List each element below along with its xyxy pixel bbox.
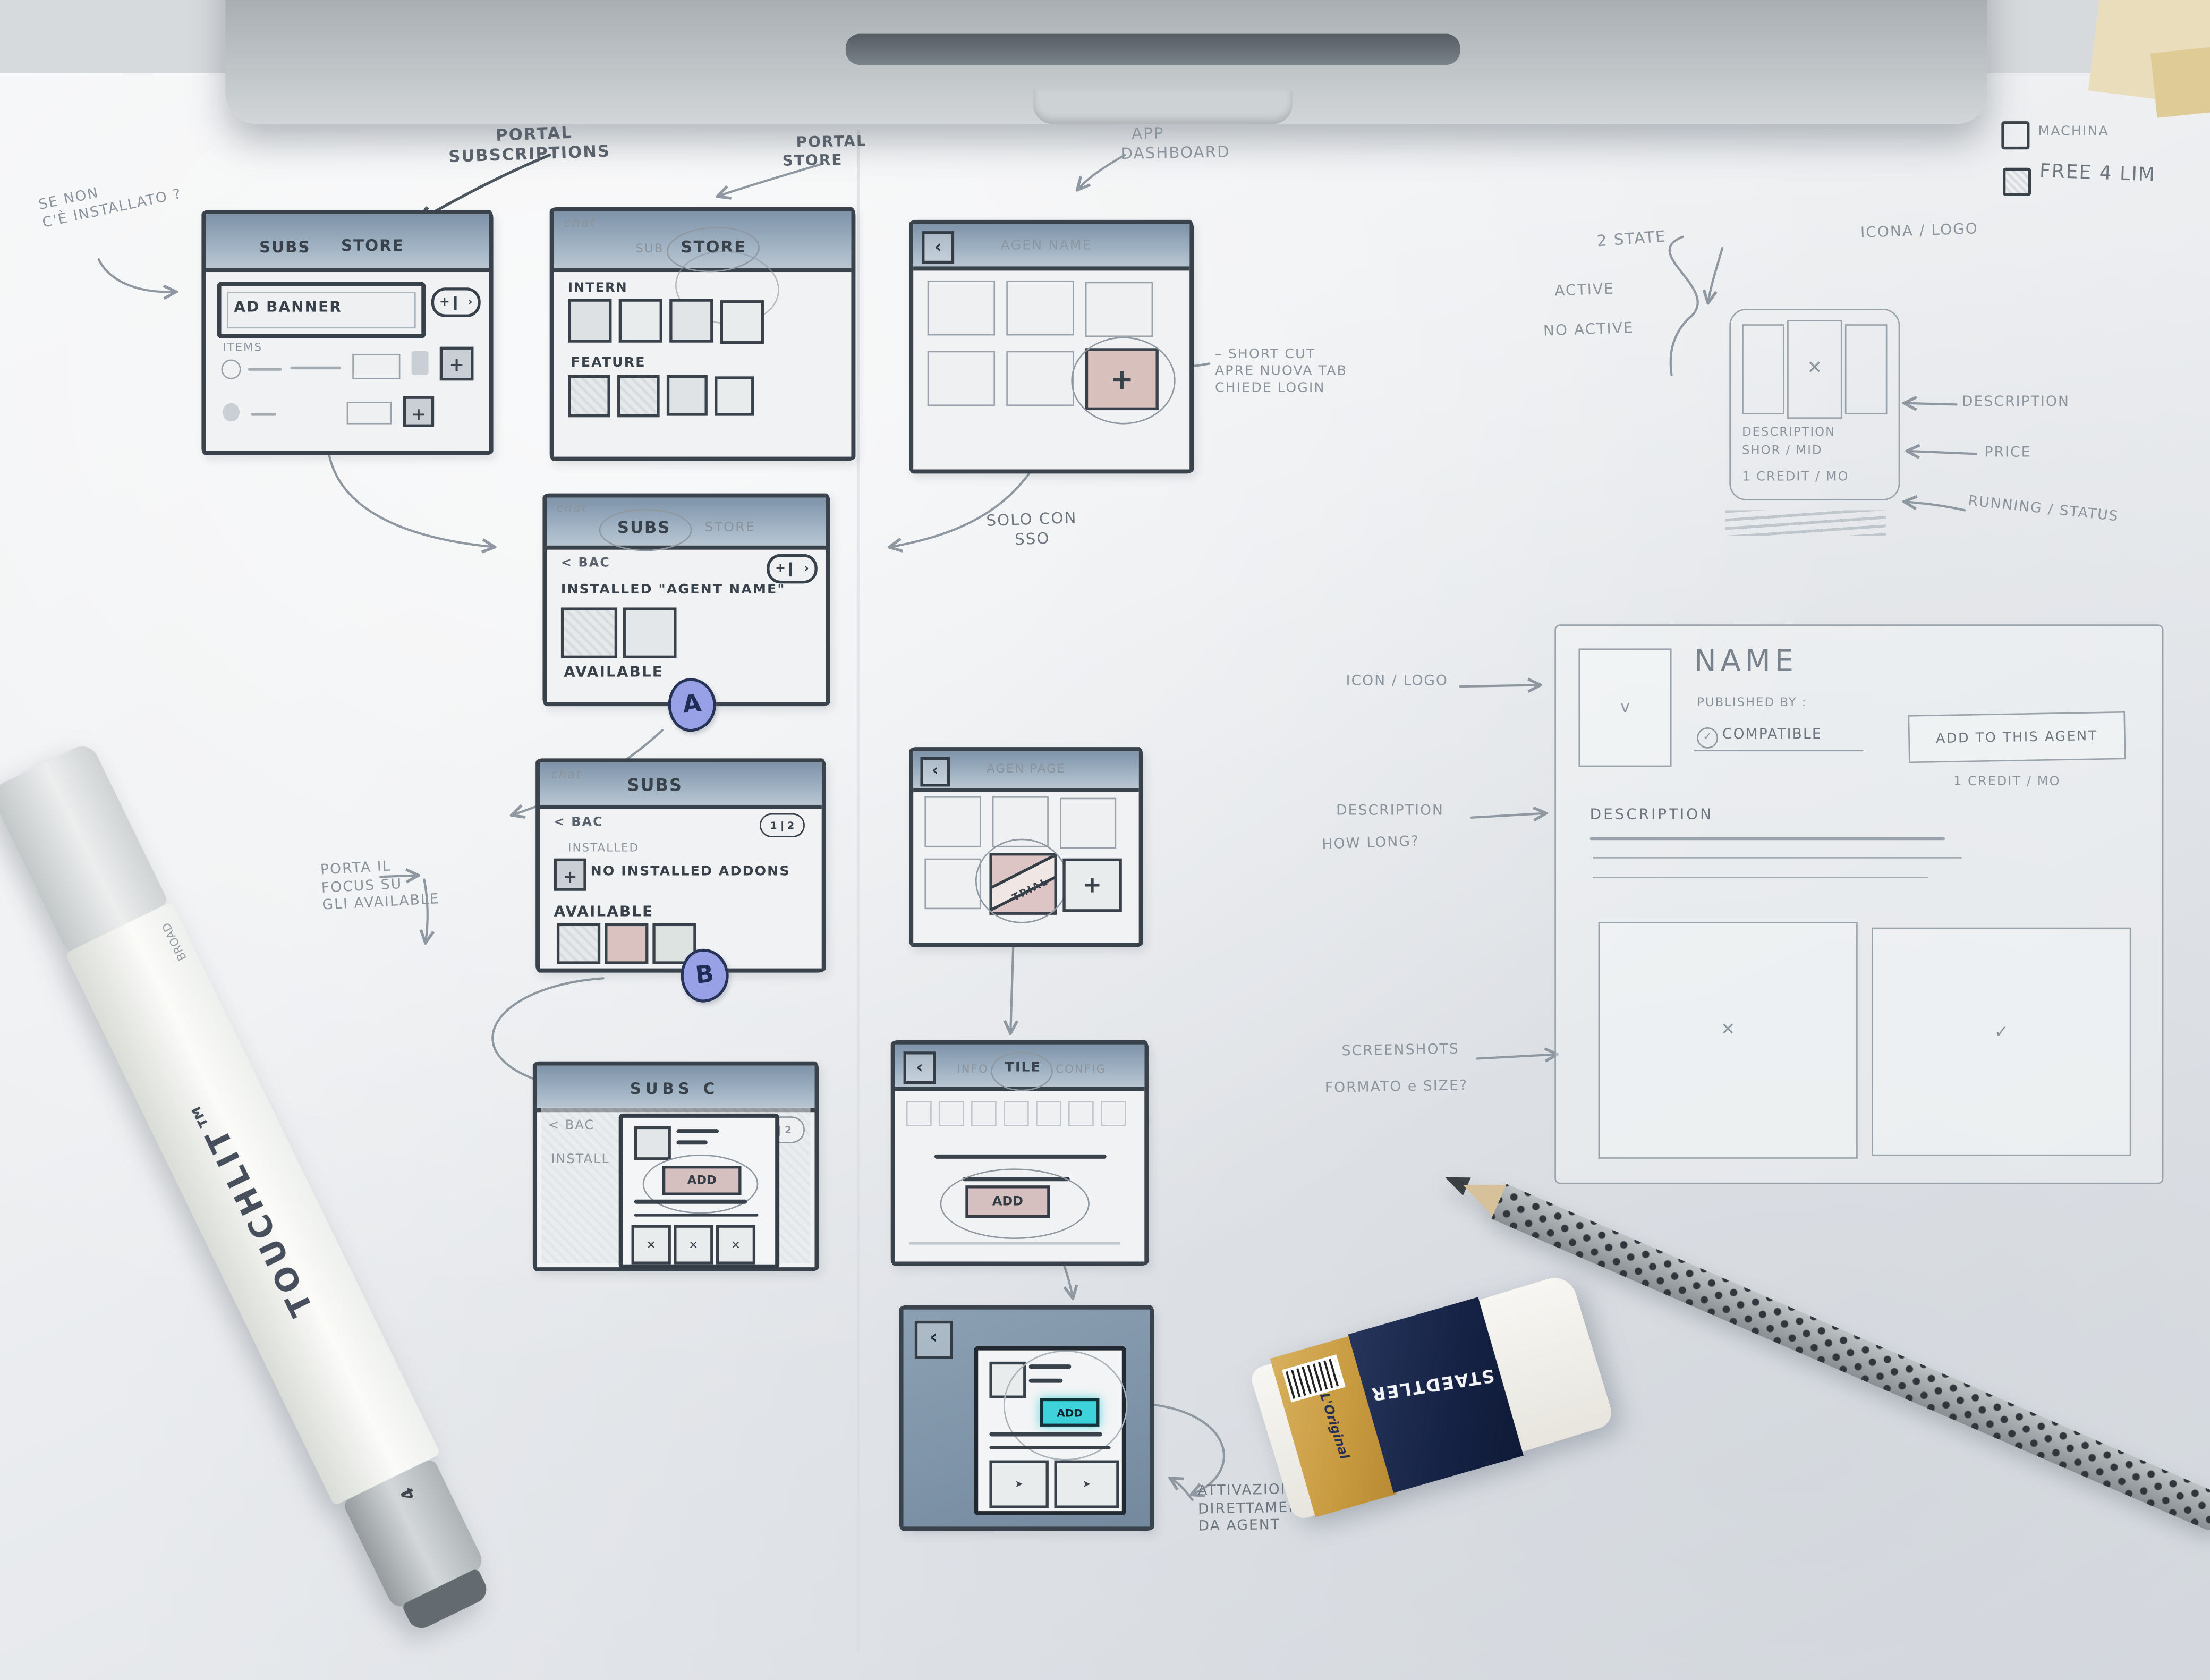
agent-page-header: ‹ AGEN PAGE [913,751,1138,792]
description-line [1593,857,1962,859]
addon-name-line [676,1129,719,1133]
screenshot-thumb: ✕ [674,1225,713,1265]
config-slot [939,1101,964,1126]
store-item-tile [568,375,610,418]
x-mark: ✕ [1807,358,1822,379]
add-to-agent-button: ADD TO THIS AGENT [1908,711,2126,763]
x-mark: ✕ [688,1239,698,1252]
item-squiggle [248,368,282,370]
available-addon-tile [557,923,600,964]
app-tile [928,281,995,335]
agent-tile [1060,798,1116,849]
back-icon: ‹ [930,1327,938,1349]
screenshot-thumb: ✕ [632,1225,671,1265]
app-tile [1006,281,1074,335]
arrow-detail-screenshots [1477,1054,1556,1058]
section-feature: FEATURE [571,355,645,372]
store-item-tile [617,375,660,418]
tile-panel-icon: ✕ [1787,320,1842,419]
divider-line [989,1432,1102,1436]
addon-name-line [676,1140,707,1144]
back-icon: ‹ [932,761,938,779]
agent-tile [924,859,981,910]
wireframe-tile-config: ‹ INFO TILE CONFIG ADD [891,1040,1149,1266]
running-status-bar [1725,510,1885,536]
icon-tick-mark: v [1620,698,1629,716]
agent-tile [924,796,981,847]
item-field [347,402,392,424]
item-dash [251,413,276,415]
subs-detail-title: SUBS C [630,1080,719,1099]
wireframe-subs-detail: SUBS C < BAC INSTALL 1 | 2 ADD ✕ ✕ ✕ [533,1062,819,1271]
checkbox-free [2003,168,2031,196]
wireframe-portal-store: chat SUB STORE INTERN FEATURE [550,207,856,461]
available-heading: AVAILABLE [554,904,654,922]
add-item-button: + [403,396,434,427]
add-button-circle [643,1155,759,1214]
back-icon: ‹ [934,237,941,257]
store-item-tile [568,299,611,342]
installed-header: chat SUBS STORE [547,498,826,550]
toggle-chevron-icon: › [467,295,473,310]
tile-description-label: DESCRIPTION [1742,426,1835,440]
empty-addon-icon: + [554,859,586,891]
description-line [1590,837,1945,840]
photo-stage: PORTAL SUBSCRIPTIONS SE NON C'È INSTALLA… [0,0,2210,1658]
addon-icon-placeholder [634,1126,671,1160]
arrow-tile-price [1908,451,1976,454]
dashboard-title: AGEN NAME [1001,238,1092,255]
note-detail-format-size: FORMATO e SIZE? [1325,1079,1468,1099]
tab-store: STORE [705,520,755,537]
back-link: < BAC [548,1119,594,1135]
note-detail-screenshots: SCREENSHOTS [1341,1042,1459,1062]
eraser-brand-label: STAEDTLER [1373,1365,1496,1405]
x-mark: ✕ [1721,1019,1735,1039]
note-detail-how-long: HOW LONG? [1322,834,1420,855]
new-tile-circle [975,839,1068,923]
item-bullet-icon [222,360,241,379]
tab-tile-circle [991,1051,1053,1091]
config-slot [1004,1101,1029,1126]
addon-name: NAME [1694,643,1798,680]
badge-letter: A [681,690,702,719]
arrow-store-to-installed [328,451,493,547]
installed-addon-tile [623,607,677,658]
plus-icon: + [1083,871,1102,898]
screenshot-thumb: ➤ [1054,1461,1119,1508]
section-intern: INTERN [568,282,628,298]
divider-line [634,1214,758,1216]
installed-heading: INSTALLED "AGENT NAME" [561,582,786,599]
check-machina-label: MACHINA [2038,124,2109,141]
window-corner-label: chat [551,768,582,783]
activation-dialog: ADD ➤ ➤ [974,1346,1126,1515]
note-portal-subscriptions: PORTAL SUBSCRIPTIONS [447,121,610,167]
app-dashboard-header: ‹ AGEN NAME [913,224,1189,271]
plus-tile-circle [1071,337,1175,424]
back-button: ‹ [915,1321,953,1359]
empty-subs-header: chat SUBS [540,762,822,809]
config-slot [1068,1101,1094,1126]
store-item-tile [669,299,713,342]
divider-line [989,1446,1110,1449]
add-to-agent-label: ADD TO THIS AGENT [1936,728,2098,746]
wireframe-addon-detail: v NAME PUBLISHED BY : ✓ COMPATIBLE ADD T… [1554,624,2163,1184]
subs-store-header: SUBS STORE [206,214,489,272]
trash-icon [412,351,429,375]
add-button-circle [1004,1351,1127,1461]
plus-icon: + [563,867,577,887]
back-button: ‹ [920,757,950,787]
baseline [909,1242,1120,1244]
tile-price-label: 1 CREDIT / MO [1742,471,1849,487]
note-tile-description: DESCRIPTION [1962,395,2070,412]
eraser-original-label: L'Original [1316,1391,1350,1461]
tile-panel-right [1845,324,1888,414]
item-dash [291,367,342,369]
screenshot-box: ✓ [1872,928,2131,1156]
back-button: ‹ [904,1051,936,1084]
back-link: < BAC [561,557,610,573]
add-button-circle [940,1168,1090,1239]
app-tile [928,351,995,406]
tab-subs-circle [599,509,692,551]
detail-price: 1 CREDIT / MO [1953,775,2060,791]
back-button: ‹ [922,231,954,264]
back-icon: ‹ [916,1057,923,1077]
arrow-modal-to-attivazione [1147,1404,1224,1494]
back-link: < BAC [554,816,603,832]
brace-two-state [1670,237,1698,375]
app-tile [1006,351,1074,406]
tab-subs: SUBS [627,775,683,796]
note-app-dashboard: APP DASHBOARD [1120,123,1230,164]
ad-banner-label: AD BANNER [234,299,342,317]
add-item-button: + [440,347,474,381]
note-solo-con-sso: SOLO CON SSO [986,508,1078,550]
x-mark: ✕ [731,1239,741,1252]
arrow-tile-description [1906,403,1957,405]
toggle-plus-icon: + [775,562,793,576]
item-bullet-icon [223,403,240,421]
pager-label: 1 | 2 [770,820,795,831]
arrow-attivazione-glyph [1171,1479,1193,1500]
config-slot [971,1101,997,1126]
description-heading: DESCRIPTION [1590,807,1713,825]
pager-pill: 1 | 2 [760,813,805,837]
screenshot-thumb: ✕ [716,1225,755,1265]
divider-line [934,1155,1107,1159]
installed-addon-tile [561,607,617,658]
tile-duration-label: SHOR / MID [1742,444,1822,459]
addon-icon-box: v [1578,648,1671,767]
cursor-icon: ➤ [1083,1479,1091,1490]
installed-heading: INSTALLED [568,842,639,856]
wireframe-agent-page: ‹ AGEN PAGE TRIAL + [909,747,1143,947]
tile-panel-left [1742,324,1784,414]
available-addon-tile [605,923,648,964]
store-item-tile [715,376,754,415]
arrow-detail-description [1472,813,1545,818]
window-corner-label: chat [564,217,596,233]
check-free-label: FREE 4 LIM [2039,160,2156,188]
config-slot [1036,1101,1061,1126]
cursor-icon: ➤ [1015,1479,1023,1490]
toggle-chevron-icon: › [804,562,809,576]
check-mark: ✓ [1994,1022,2009,1041]
view-toggle: +› [767,554,818,584]
tile-spec-card: ✕ DESCRIPTION SHOR / MID 1 CREDIT / MO [1729,309,1900,500]
arrow-se-non [99,259,175,292]
note-portal-store: PORTAL STORE [782,133,868,172]
tab-subs: SUBS [259,238,311,257]
agent-page-title: AGEN PAGE [987,762,1066,777]
screenshot-thumb: ➤ [989,1461,1048,1508]
note-shortcut: – SHORT CUT APRE NUOVA TAB CHIEDE LOGIN [1215,347,1347,397]
window-corner-label: chat [557,502,588,516]
no-addons-text: NO INSTALLED ADDONS [591,864,790,881]
note-state-no-active: NO ACTIVE [1543,320,1635,342]
item-field [352,354,400,379]
arrow-agentpage-to-tile [1010,941,1013,1032]
items-label: ITEMS [223,341,262,355]
store-item-tile [619,299,662,342]
add-tile-button: + [1062,859,1121,912]
tab-store: STORE [341,237,404,256]
note-tile-price: PRICE [1985,445,2031,463]
checkbox-machina [2001,121,2029,149]
store-item-tile [667,375,708,416]
note-state-active: ACTIVE [1554,281,1615,302]
install-label: INSTALL [551,1153,610,1169]
wireframe-app-dashboard: ‹ AGEN NAME + [909,220,1194,474]
compatible-label: COMPATIBLE [1722,727,1822,745]
badge-letter: B [694,961,716,990]
config-slot [1101,1101,1126,1126]
banner-toggle: +› [431,287,481,317]
toggle-plus-icon: + [439,295,457,310]
plus-icon: + [449,355,464,377]
tile-config-header: ‹ INFO TILE CONFIG [895,1045,1145,1091]
addon-dialog: ADD ✕ ✕ ✕ [619,1114,779,1269]
wireframe-subs-store: SUBS STORE AD BANNER +› ITEMS + + [201,210,493,455]
screenshot-box: ✕ [1599,922,1858,1159]
tab-config: CONFIG [1056,1063,1106,1077]
app-tile [1085,282,1153,337]
wireframe-installed: chat SUBS STORE < BAC +› INSTALLED "AGEN… [542,494,830,707]
config-slot [906,1101,932,1126]
description-line [1593,877,1928,879]
ad-banner-box: AD BANNER [217,282,426,338]
compatible-check-icon: ✓ [1697,727,1718,749]
store-item-tile [720,300,764,344]
plus-icon: + [412,404,426,424]
tab-info: INFO [957,1063,989,1077]
note-detail-icon-logo: ICON / LOGO [1346,674,1448,691]
subs-detail-header: SUBS C [537,1066,815,1113]
eraser-barcode [1282,1354,1346,1402]
arrow-icona-logo-down [1708,248,1723,302]
arrow-detail-icon [1460,685,1540,686]
arrow-tile-running [1906,502,1965,510]
wireframe-activation-modal: ‹ ADD ➤ ➤ [899,1305,1154,1531]
note-detail-description: DESCRIPTION [1336,803,1444,821]
compatible-underline [1694,750,1863,751]
note-porta-focus: PORTA IL FOCUS SU GLI AVAILABLE [320,857,440,916]
available-heading: AVAILABLE [564,664,664,683]
arrow-app-dashboard [1078,155,1125,189]
x-mark: ✕ [647,1239,656,1252]
published-by: PUBLISHED BY : [1697,697,1807,711]
divider-line [634,1200,747,1203]
wireframe-empty-subs: chat SUBS < BAC 1 | 2 INSTALLED + NO INS… [535,758,826,972]
tab-sub: SUB [636,242,664,257]
